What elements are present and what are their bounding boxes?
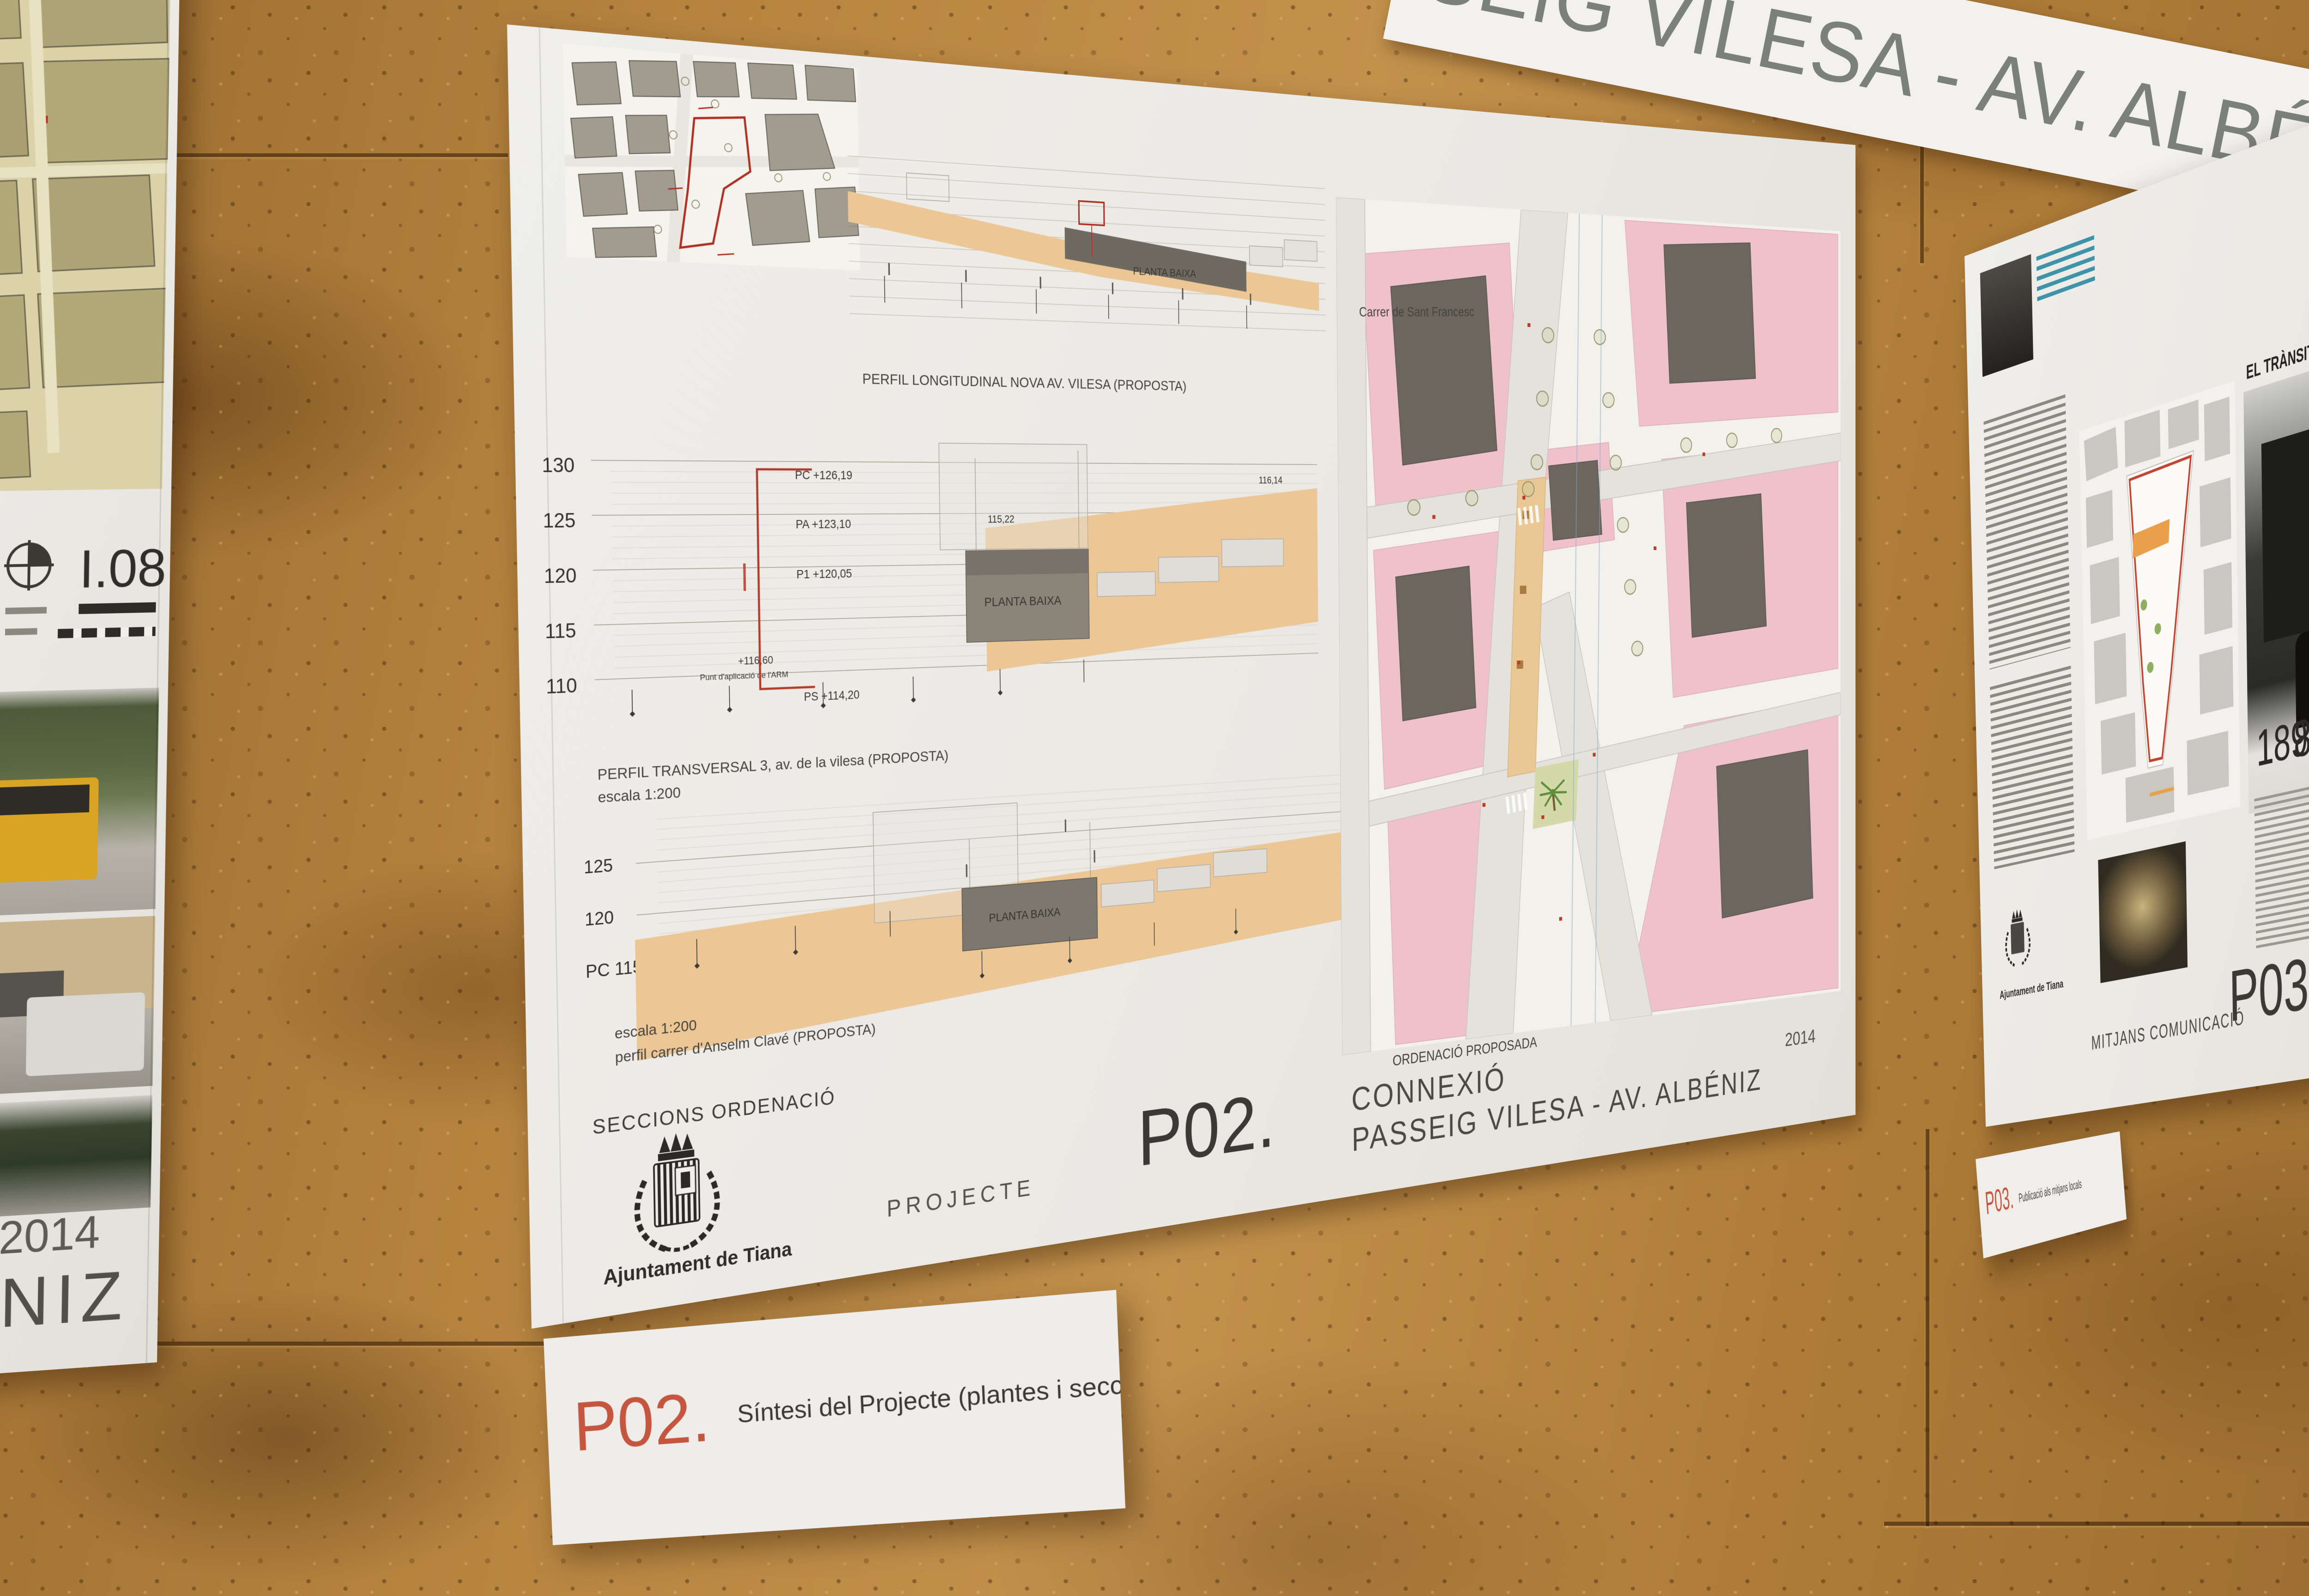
- elev-130: 130: [542, 453, 575, 477]
- ground-start-value: 115,22: [988, 514, 1015, 525]
- exhibition-wall: SEIG VILESA - AV. ALBÉNIZ: [0, 0, 2309, 1596]
- card-code: P03.: [1984, 1179, 2015, 1221]
- left-poster-sheet-code: I.08: [79, 537, 167, 600]
- level-pc: PC +126,19: [795, 469, 852, 482]
- site-plan: [563, 43, 860, 270]
- street-photo-bus: [0, 688, 159, 927]
- meta-label-bar: [5, 607, 47, 614]
- body-text-column: [1983, 394, 2070, 670]
- poster-code: P03.: [2228, 938, 2309, 1038]
- organization-name: Ajuntament de Tiana: [2000, 977, 2063, 1002]
- plan-street-label: Carrer de Sant Francesc: [1359, 304, 1474, 319]
- small-photo: [2098, 841, 2188, 983]
- proposed-plan: Carrer de Sant Francesc: [1336, 197, 1841, 1055]
- elev-120: 120: [585, 907, 614, 930]
- card-text: Publicació als mitjans locals: [2018, 1177, 2082, 1206]
- elev-125: 125: [543, 509, 576, 532]
- elev-120: 120: [544, 564, 576, 587]
- card-text: Síntesi del Projecte (plantes i seccions…: [737, 1365, 1125, 1428]
- profile-anselm: 125 120 PC 115 PLANTA BAIXA: [583, 762, 1380, 1066]
- street-photo-cars: [0, 916, 155, 1109]
- board-seam: [1926, 1129, 1929, 1526]
- transversal-caption: PERFIL TRANSVERSAL 3, av. de la vilesa (…: [597, 747, 949, 784]
- arm-note: Punt d'aplicació de l'ARM: [700, 670, 789, 683]
- p03-map: [2079, 381, 2241, 840]
- card-code: P02.: [572, 1376, 712, 1467]
- main-poster-year: 2014: [1785, 1025, 1815, 1051]
- left-poster: I.08 2014 ALBÉNIZ: [0, 0, 180, 1395]
- body-text-column: [1990, 665, 2074, 869]
- elev-125: 125: [584, 855, 613, 877]
- arm-value: +116,60: [738, 654, 774, 667]
- left-poster-map: [0, 0, 171, 495]
- profile-longitudinal: PLANTA BAIXA: [835, 129, 1329, 363]
- p03-footer-label: MITJANS COMUNICACIÓ: [2091, 1007, 2245, 1054]
- level-ps: PS +114,20: [804, 688, 860, 704]
- scale-bar: [79, 602, 156, 614]
- phase-label: PROJECTE: [887, 1173, 1035, 1222]
- mini-photo: [1980, 254, 2033, 377]
- level-pa: PA +123,10: [796, 518, 851, 532]
- board-seam: [1884, 1522, 2309, 1526]
- ground-end-value: 116,14: [1259, 475, 1282, 486]
- scale-bar-segments: [58, 627, 156, 638]
- column-text: [2254, 783, 2309, 950]
- meta-label-bar: [5, 628, 37, 635]
- photo-white-van: [26, 992, 145, 1076]
- profile-transversal: 130 125 120 115 110 PLANTA BAIXA PC +126…: [539, 428, 1322, 723]
- poster-code: P02.: [1137, 1076, 1276, 1184]
- level-p1: P1 +120,05: [796, 567, 852, 581]
- mini-card-title-lines: [2037, 235, 2095, 307]
- elev-115: 115: [545, 619, 576, 643]
- longitudinal-caption: PERFIL LONGITUDINAL NOVA AV. VILESA (PRO…: [862, 371, 1186, 395]
- transversal-scale: escala 1:200: [598, 784, 681, 807]
- coat-of-arms-logo: [627, 1123, 754, 1259]
- left-poster-year: 2014: [0, 1206, 100, 1265]
- compass-icon: [1, 537, 57, 594]
- elev-110: 110: [546, 674, 577, 698]
- left-poster-street-fragment: ALBÉNIZ: [0, 1255, 129, 1357]
- coat-of-arms-logo: [2002, 899, 2041, 975]
- planta-baixa-label: PLANTA BAIXA: [984, 593, 1062, 609]
- main-poster-p02: PLANTA BAIXA PERFIL LONGITUDINAL NOVA AV…: [507, 24, 1856, 1329]
- elev-pc115: PC 115: [586, 956, 642, 982]
- photo-building-silhouette: [2261, 421, 2309, 643]
